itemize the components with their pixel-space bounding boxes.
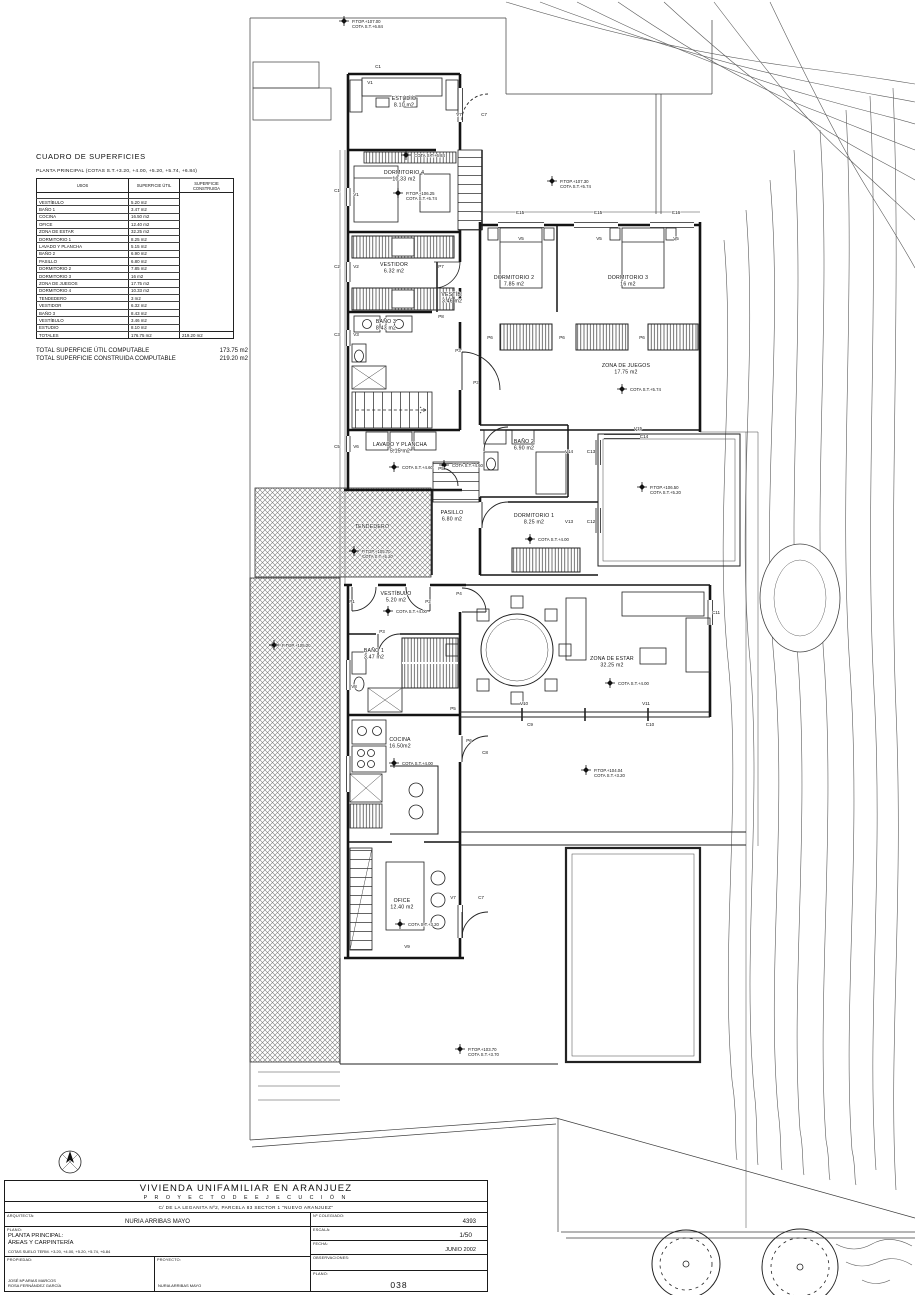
room-label: LAVADO Y PLANCHA5.15 m2	[373, 442, 427, 455]
sheet-label: PLANO:	[313, 1272, 328, 1276]
room-label: DORMITORIO 316 m2	[608, 275, 648, 288]
total-util-line: TOTAL SUPERFICIE ÚTIL COMPUTABLE 173.75 …	[36, 348, 248, 354]
room-label: DORMITORIO 18.25 m2	[514, 513, 554, 526]
architect-cell: ARQUITECTA: NURIA ARRIBAS MAYO	[5, 1213, 310, 1227]
opening-code: V5	[596, 236, 602, 241]
svg-text:COTA S.T.+4.00: COTA S.T.+4.00	[618, 681, 649, 686]
cota-label: COTA S.T.+3.20	[395, 919, 439, 929]
observations-cell: OBSERVACIONES:	[311, 1255, 487, 1271]
surfaces-subtitle: PLANTA PRINCIPAL (COTAS S.T.+3.20, +4.00…	[36, 169, 268, 174]
opening-code: V2	[353, 264, 359, 269]
total-util-value: 173.75 m2	[220, 348, 248, 354]
svg-text:P.TOP.+105.20: P.TOP.+105.20	[282, 643, 311, 648]
sheet-number-cell: PLANO: 038	[311, 1271, 487, 1291]
project-title: VIVIENDA UNIFAMILIAR EN ARANJUEZ	[5, 1183, 487, 1194]
room-label: ZONA DE ESTAR32.25 m2	[590, 656, 634, 669]
cota-label: P.TOP.+106.50COTA S.T.+5.20	[637, 482, 681, 495]
opening-code: C14	[640, 434, 649, 439]
opening-code: V13	[565, 519, 574, 524]
opening-code: C2	[334, 264, 340, 269]
plan-name-line2: ÁREAS Y CARPINTERÍA	[8, 1240, 307, 1247]
names-cell: PROPIEDAD: JOSÉ Mª ARIAS MARCOS ROSA FER…	[5, 1257, 310, 1291]
north-arrow-icon	[59, 1151, 81, 1173]
opening-code: C3	[334, 332, 340, 337]
table-row: COCINA16.50 m2	[37, 213, 234, 220]
total-construida-label: TOTAL SUPERFICIE CONSTRUIDA COMPUTABLE	[36, 356, 176, 362]
cota-label: P.TOP.+106.25COTA S.T.+5.74	[393, 188, 437, 201]
property-cell: PROPIEDAD: JOSÉ Mª ARIAS MARCOS ROSA FER…	[5, 1257, 155, 1291]
project-by-cell: PROYECTO: NURIA ARRIBAS MAYO	[155, 1257, 310, 1291]
table-row: DORMITORIO 18.25 m2	[37, 235, 234, 242]
svg-text:COTA S.T.+5.74: COTA S.T.+5.74	[630, 387, 661, 392]
table-row: ESTUDIO8.10 m2	[37, 324, 234, 331]
cota-label: COTA S.T.+5.74	[617, 384, 661, 394]
total-construida-line: TOTAL SUPERFICIE CONSTRUIDA COMPUTABLE 2…	[36, 356, 248, 362]
totals-row: TOTALES176.75 m2219.20 m2	[37, 332, 234, 339]
svg-text:P.TOP.+104.04COTA S.T.+3.20: P.TOP.+104.04COTA S.T.+3.20	[594, 768, 625, 778]
svg-text:P.TOP.+107.30COTA S.T.+5.74: P.TOP.+107.30COTA S.T.+5.74	[560, 179, 591, 189]
svg-text:P.TOP.+106.25COTA S.T.+5.74: P.TOP.+106.25COTA S.T.+5.74	[406, 191, 437, 201]
title-block-header: VIVIENDA UNIFAMILIAR EN ARANJUEZ P R O Y…	[5, 1181, 487, 1202]
opening-code: P5	[438, 466, 444, 471]
opening-code: C5	[334, 444, 340, 449]
opening-code: V9	[404, 944, 410, 949]
driveway-path	[250, 578, 340, 1062]
project-by-name: NURIA ARRIBAS MAYO	[158, 1283, 201, 1288]
opening-code: V10	[520, 701, 529, 706]
plan-name-cell: PLANO: PLANTA PRINCIPAL: ÁREAS Y CARPINT…	[5, 1227, 310, 1257]
svg-text:COTA S.T.+6.84: COTA S.T.+6.84	[414, 153, 445, 158]
college-cell: Nº COLEGIADO: 4393	[311, 1213, 487, 1227]
room-label: DORMITORIO 410.33 m2	[384, 170, 424, 183]
opening-code: P4	[456, 591, 462, 596]
opening-code: P3	[473, 380, 479, 385]
total-util-label: TOTAL SUPERFICIE ÚTIL COMPUTABLE	[36, 348, 149, 354]
architect-label: ARQUITECTA:	[7, 1214, 34, 1218]
room-label: ZONA DE JUEGOS17.75 m2	[602, 363, 651, 376]
college-label: Nº COLEGIADO:	[313, 1214, 344, 1218]
observations-label: OBSERVACIONES:	[313, 1256, 349, 1260]
property-label: PROPIEDAD:	[7, 1258, 32, 1262]
project-subtitle: P R O Y E C T O D E E J E C U C I Ó N	[5, 1195, 487, 1201]
room-label: PASILLO6.80 m2	[441, 510, 464, 523]
sheet-number: 038	[314, 1280, 484, 1290]
col-util: SUPERFICIE ÚTIL	[129, 179, 180, 193]
opening-code: P6	[639, 335, 645, 340]
table-row: VESTÍBULO5.20 m2	[37, 199, 234, 206]
svg-text:P.TOP.+105.70COTA S.T.+5.20: P.TOP.+105.70COTA S.T.+5.20	[362, 549, 393, 559]
cota-label: COTA S.T.+4.60	[389, 462, 433, 472]
svg-text:COTA S.T.+3.20: COTA S.T.+3.20	[408, 922, 439, 927]
surfaces-table: USOS SUPERFICIE ÚTIL SUPERFICIE CONSTRUI…	[36, 178, 234, 339]
room-label: VESTÍB.3.46 m2	[441, 291, 462, 305]
opening-code: P2	[425, 599, 431, 604]
cota-label: COTA S.T.+4.00	[525, 534, 569, 544]
trees	[652, 1229, 838, 1295]
table-row: LAVADO Y PLANCHA5.15 m2	[37, 243, 234, 250]
room-label: VESTIDOR6.32 m2	[380, 262, 408, 275]
table-row: DORMITORIO 316 m2	[37, 272, 234, 279]
table-row: DORMITORIO 27.85 m2	[37, 265, 234, 272]
opening-code: P3	[379, 629, 385, 634]
svg-text:COTA S.T.+4.00: COTA S.T.+4.00	[396, 609, 427, 614]
opening-code: C15	[594, 210, 603, 215]
tree-icon	[652, 1230, 720, 1295]
table-row: DORMITORIO 410.33 m2	[37, 287, 234, 294]
svg-text:P.TOP.+103.70COTA S.T.+3.70: P.TOP.+103.70COTA S.T.+3.70	[468, 1047, 499, 1057]
opening-code: V14	[565, 449, 574, 454]
stair-upper	[458, 150, 482, 230]
room-label: OFICE12.40 m2	[390, 898, 413, 911]
pool	[566, 848, 700, 1062]
svg-text:P.TOP.+106.50COTA S.T.+5.20: P.TOP.+106.50COTA S.T.+5.20	[650, 485, 681, 495]
opening-code: P8	[438, 314, 444, 319]
cota-label: COTA S.T.+4.00	[383, 606, 427, 616]
table-row: PASILLO6.80 m2	[37, 258, 234, 265]
patio-court	[598, 434, 740, 566]
table-row: VESTÍBULO3.46 m2	[37, 317, 234, 324]
svg-text:COTA S.T.+4.00: COTA S.T.+4.00	[402, 761, 433, 766]
project-by-label: PROYECTO:	[157, 1258, 181, 1262]
project-address: C/ DE LA LEGANITA Nº2, PARCELA 83 SECTOR…	[5, 1202, 487, 1213]
opening-code: C1	[375, 64, 381, 69]
plan-label: PLANO:	[7, 1228, 22, 1232]
plan-cotas-line: COTAS SUELO TERM. +3.20, +4.00, +5.20, +…	[8, 1249, 307, 1254]
room-label: BAÑO 38.43 m2	[376, 318, 396, 332]
opening-code: V11	[642, 701, 650, 706]
opening-code: C15	[516, 210, 525, 215]
opening-code: C8	[482, 750, 488, 755]
scale-value: 1/50	[314, 1232, 484, 1239]
room-label: BAÑO 13.47 m2	[364, 647, 384, 661]
scale-label: ESCALA:	[313, 1228, 330, 1232]
opening-code: C16	[672, 210, 681, 215]
room-label: BAÑO 26.90 m2	[514, 438, 534, 452]
opening-code: P7	[438, 264, 444, 269]
opening-code: P6	[487, 335, 493, 340]
opening-code: P1	[349, 599, 355, 604]
opening-code: P5	[450, 706, 456, 711]
svg-text:COTA S.T.+4.60: COTA S.T.+4.60	[402, 465, 433, 470]
opening-code: P6	[559, 335, 565, 340]
room-label: VESTÍBULO5.20 m2	[381, 590, 412, 604]
opening-code: V5	[673, 236, 679, 241]
opening-code: C9	[527, 722, 533, 727]
table-row: ZONA DE ESTAR32.25 m2	[37, 228, 234, 235]
date-value: JUNIO 2002	[314, 1247, 484, 1253]
opening-code: C7	[478, 895, 484, 900]
opening-code: V5	[518, 236, 524, 241]
plan-name-line1: PLANTA PRINCIPAL:	[8, 1233, 307, 1240]
scale-cell: ESCALA: 1/50	[311, 1227, 487, 1241]
svg-text:COTA S.T.+4.60: COTA S.T.+4.60	[452, 463, 483, 468]
opening-code: V1	[367, 80, 373, 85]
property-names: JOSÉ Mª ARIAS MARCOS ROSA FERNÁNDEZ GARC…	[8, 1278, 61, 1288]
date-label: FECHA:	[313, 1242, 328, 1246]
surfaces-panel: CUADRO DE SUPERFICIES PLANTA PRINCIPAL (…	[36, 152, 268, 362]
room-label: ESTUDIO8.10 m2	[392, 96, 416, 109]
table-row: TENDEDERO3 m2	[37, 295, 234, 302]
opening-code: V7	[450, 895, 456, 900]
hatched-areas	[250, 488, 431, 1062]
opening-code: C13	[587, 449, 596, 454]
svg-text:P.TOP.+107.00COTA S.T.+6.84: P.TOP.+107.00COTA S.T.+6.84	[352, 19, 383, 29]
total-construida-value: 219.20 m2	[220, 356, 248, 362]
cota-label: COTA S.T.+4.00	[605, 678, 649, 688]
opening-code: P6	[466, 738, 472, 743]
table-row: BAÑO 26.90 m2	[37, 250, 234, 257]
opening-code: V7	[456, 112, 462, 117]
tendedero-terrace	[255, 488, 431, 577]
table-row: OFICE12.40 m2	[37, 221, 234, 228]
opening-code: V1	[353, 192, 359, 197]
opening-code: V3	[353, 332, 359, 337]
surfaces-title: CUADRO DE SUPERFICIES	[36, 152, 268, 161]
construction-lines	[340, 212, 758, 1228]
opening-code: C10	[646, 722, 655, 727]
opening-code: V6	[353, 444, 359, 449]
room-label: COCINA16.50m2	[389, 737, 411, 750]
cota-label: P.TOP.+103.70COTA S.T.+3.70	[455, 1044, 499, 1057]
svg-text:COTA S.T.+4.00: COTA S.T.+4.00	[538, 537, 569, 542]
college-number: 4393	[314, 1219, 484, 1225]
cota-label: P.TOP.+107.30COTA S.T.+5.74	[547, 176, 591, 189]
table-row: VESTIDOR6.32 m2	[37, 302, 234, 309]
room-label: TENDEDERO	[355, 524, 389, 530]
opening-code: V15	[634, 426, 643, 431]
table-row: BAÑO 38.43 m2	[37, 309, 234, 316]
col-construida: SUPERFICIE CONSTRUIDA	[180, 179, 234, 193]
opening-code: C11	[712, 610, 721, 615]
opening-code: P3	[455, 348, 461, 353]
opening-code: C12	[587, 519, 596, 524]
drawing-sheet: ESTUDIO8.10 m2DORMITORIO 410.33 m2VESTID…	[0, 0, 915, 1295]
col-usos: USOS	[37, 179, 129, 193]
opening-code: C1	[334, 188, 340, 193]
table-row: BAÑO 13.47 m2	[37, 206, 234, 213]
architect-name: NURIA ARRIBAS MAYO	[8, 1219, 307, 1225]
date-cell: FECHA: JUNIO 2002	[311, 1241, 487, 1255]
table-row: ZONA DE JUEGOS17.75 m2	[37, 280, 234, 287]
tree-icon	[762, 1229, 838, 1295]
opening-code: C7	[481, 112, 487, 117]
opening-code: V8	[351, 684, 357, 689]
cota-label: P.TOP.+104.04COTA S.T.+3.20	[581, 765, 625, 778]
title-block: VIVIENDA UNIFAMILIAR EN ARANJUEZ P R O Y…	[4, 1180, 488, 1292]
